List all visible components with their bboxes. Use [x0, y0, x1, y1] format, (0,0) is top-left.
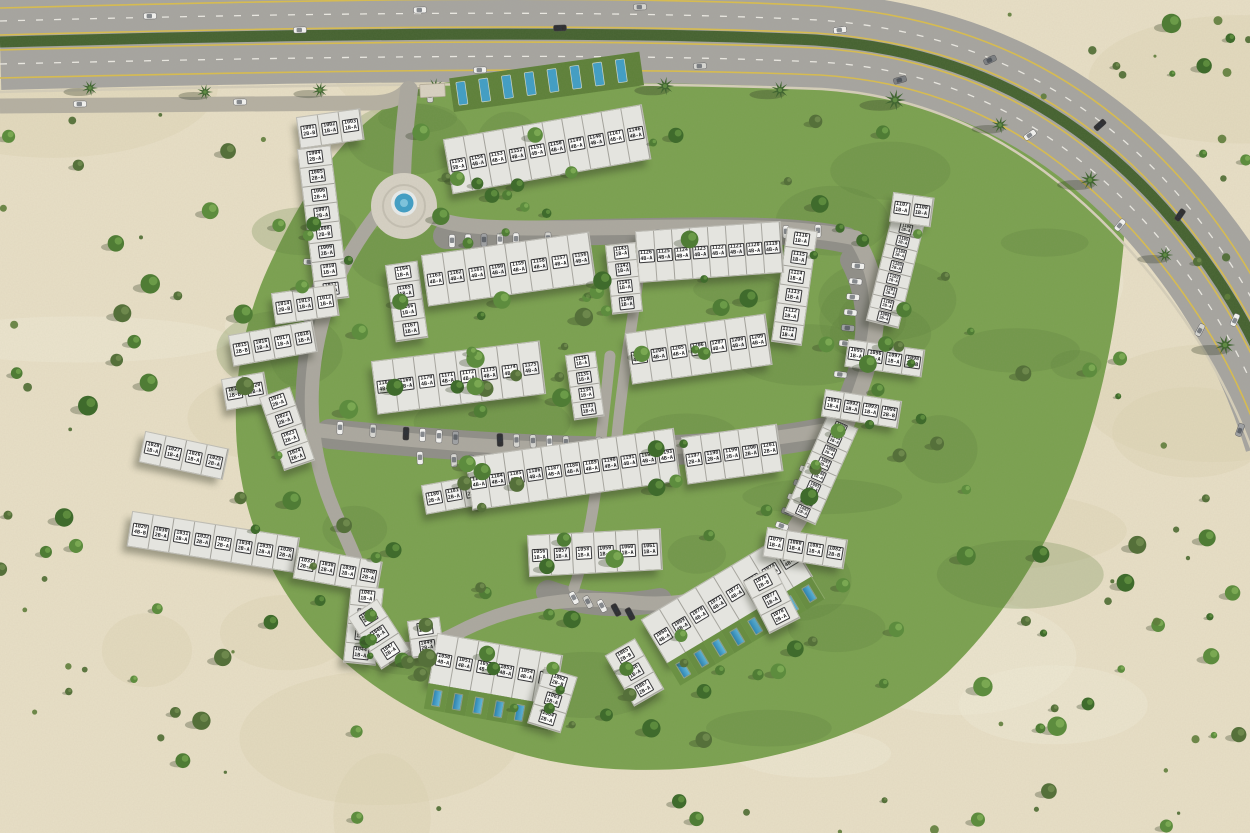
unit-type: 2B-A: [175, 536, 188, 543]
unit-type: 4B-B: [133, 529, 146, 536]
unit-type: 2B-A: [797, 509, 807, 517]
unit-type: 2B-A: [309, 156, 322, 163]
unit-type: 1B-A: [868, 356, 881, 363]
pool: [451, 693, 463, 711]
unit-type: 1B-A: [826, 403, 839, 410]
unit: 10591B-A: [594, 531, 618, 572]
unit-type: 4B-A: [575, 258, 588, 265]
unit-plaque: 10534B-A: [497, 663, 515, 679]
unit-type: 2B-A: [314, 194, 327, 201]
unit-plaque: 10012B-B: [300, 124, 318, 139]
unit-plaque: 10801B-A: [786, 539, 804, 555]
unit-plaque: 10372B-A: [297, 557, 315, 573]
unit-type: 2B-A: [897, 240, 907, 247]
unit: 10982B-B: [902, 348, 924, 376]
unit-plaque: 10242B-A: [286, 447, 305, 465]
building-row-d1: 10281B-A10271B-A10261B-A10252B-A: [140, 432, 228, 479]
unit-plaque: 11604B-A: [489, 263, 507, 278]
unit-type: 4B-A: [633, 357, 646, 364]
unit-type: 4B-A: [640, 256, 652, 262]
unit-plaque: 10441B-A: [352, 646, 369, 661]
unit-type: 4B-A: [437, 659, 450, 667]
unit-plaque: 11574B-A: [551, 254, 569, 269]
unit-type: 1B-A: [619, 286, 631, 293]
unit: 10581B-A: [572, 533, 596, 574]
unit-type: 1B-A: [794, 238, 807, 245]
unit-plaque: 10252B-A: [205, 454, 223, 470]
unit: 10611B-A: [638, 529, 662, 570]
building-row-R4main: 11834B-A11844B-A11854B-A11864B-A11874B-A…: [466, 429, 680, 510]
unit-type: 4B-A: [732, 343, 745, 350]
unit-type: 1B-A: [895, 207, 908, 214]
unit-type: 4B-A: [519, 674, 532, 682]
unit-type: 4B-A: [585, 466, 598, 473]
unit-plaque: 11401B-A: [618, 296, 635, 311]
unit-type: 4B-A: [548, 471, 561, 478]
unit-type: 4B-A: [421, 381, 434, 388]
unit-plaque: 10714B-A: [707, 594, 728, 614]
unit-plaque: 11012B-A: [883, 285, 899, 299]
unit-plaque: 11002B-A: [879, 298, 895, 312]
unit-plaque: 11894B-A: [583, 459, 601, 474]
unit-plaque: 11634B-A: [427, 272, 445, 287]
unit-type: 2B-A: [421, 645, 434, 652]
unit-plaque: 10724B-A: [725, 583, 746, 603]
unit-type: 1B-A: [808, 549, 821, 556]
unit-plaque: 11484B-A: [587, 133, 605, 149]
unit-plaque: 11724B-A: [460, 369, 478, 384]
unit-type: 2B-A: [299, 563, 312, 571]
unit: 10571B-A: [550, 534, 574, 575]
unit-plaque: 10082B-B: [315, 225, 333, 240]
unit-plaque: 11121B-A: [782, 307, 800, 322]
unit-plaque: 11555B-A: [449, 157, 467, 173]
unit-type: 4B-A: [457, 663, 470, 671]
unit-type: 1B-A: [792, 257, 805, 264]
unit-type: 1B-A: [360, 596, 373, 603]
unit-type: 4B-A: [567, 468, 580, 475]
building-row-col1164: 11641B-A11651B-A11661B-A11671B-A: [386, 262, 427, 342]
unit-plaque: 11032B-A: [889, 260, 905, 274]
unit-type: 4B-A: [531, 150, 544, 158]
unit-type: 1B-A: [419, 627, 432, 634]
pool: [801, 584, 817, 603]
unit-type: 4B-A: [752, 340, 765, 347]
unit-plaque: 11524B-A: [508, 147, 526, 163]
unit-type: 2B-A: [707, 456, 720, 463]
unit-plaque: 11844B-A: [488, 472, 506, 487]
building-row-row-top: 11555B-A11544B-A11534B-A11524B-A11514B-A…: [444, 105, 650, 193]
unit-plaque: 11351B-A: [575, 370, 592, 384]
unit-plaque: 11992B-A: [723, 447, 741, 462]
unit-plaque: 11431B-A: [613, 245, 630, 260]
unit-type: 1B-A: [320, 301, 333, 308]
unit-type: 4B-A: [462, 376, 475, 383]
unit-plaque: 10694B-A: [671, 616, 692, 636]
unit-plaque: 11254B-A: [656, 248, 673, 262]
unit-plaque: 10062B-A: [311, 187, 329, 202]
unit: 11401B-A: [611, 294, 642, 314]
unit-plaque: 10121B-A: [317, 294, 335, 309]
unit: 10031B-A: [339, 109, 364, 142]
unit-plaque: 11141B-A: [787, 269, 805, 284]
unit-type: 2B-A: [888, 278, 898, 285]
unit-type: 2B-A: [290, 453, 303, 462]
unit-plaque: 11194B-A: [763, 240, 780, 254]
pool: [430, 689, 442, 707]
unit-type: 1B-A: [187, 456, 200, 464]
unit-plaque: 11624B-A: [447, 269, 465, 284]
unit-type: 4B-A: [658, 255, 670, 261]
unit-plaque: 11834B-A: [470, 475, 488, 490]
unit-type: 2B-A: [196, 539, 209, 546]
unit-plaque: 10382B-A: [318, 560, 336, 576]
building-row-colRLow: 10902B-A10892B-A10882B-A10872B-A10862B-A…: [786, 416, 858, 524]
unit-plaque: 10392B-A: [339, 564, 357, 580]
unit-plaque: 11661B-A: [399, 303, 417, 318]
unit-type: 4B-A: [694, 252, 706, 258]
unit-plaque: 10571B-A: [553, 547, 570, 561]
unit-type: 2B-A: [207, 461, 220, 469]
unit-plaque: 11361B-A: [573, 354, 590, 368]
unit-type: 2B-A: [894, 253, 904, 260]
unit-type: 4B-A: [471, 273, 484, 280]
pool: [729, 627, 745, 646]
buildings-layer: 11555B-A11544B-A11534B-A11524B-A11514B-A…: [0, 0, 1250, 833]
unit-plaque: 10142B-B: [275, 300, 293, 315]
building-row-R2main: 11634B-A11624B-A11614B-A11604B-A11594B-A…: [422, 233, 595, 306]
unit-plaque: 10031B-A: [342, 118, 360, 133]
unit-plaque: 12044B-A: [650, 347, 668, 362]
unit-plaque: 11934B-A: [658, 448, 676, 463]
unit-plaque: 10684B-A: [653, 626, 674, 646]
unit-type: 4B-A: [673, 351, 686, 358]
building-row-colMidR: 11361B-A11351B-A11341B-A11331B-A: [566, 352, 604, 419]
unit-plaque: 11341B-A: [577, 386, 594, 400]
building-row-rowRMid: 10951B-A10961B-A10971B-A10982B-B: [845, 340, 924, 376]
unit-plaque: 10591B-A: [597, 545, 614, 559]
unit-plaque: 11884B-A: [564, 462, 582, 477]
unit-plaque: 11684B-A: [376, 379, 394, 394]
unit-plaque: 11514B-A: [528, 143, 546, 159]
building-row-h5: 10152B-B10161B-A10171B-A10181B-A: [229, 321, 317, 365]
unit-type: 2B-A: [272, 400, 285, 409]
unit-plaque: 10342B-A: [235, 539, 253, 555]
building-row-h3: 10012B-B10021B-A10031B-A: [297, 109, 364, 147]
unit-plaque: 11534B-A: [488, 150, 506, 166]
unit-plaque: 11131B-A: [784, 288, 802, 303]
unit-plaque: 10504B-A: [434, 652, 452, 668]
unit-type: 2B-A: [763, 448, 776, 455]
unit-type: 2B-B: [906, 361, 919, 368]
unit-type: 2B-A: [882, 303, 892, 310]
unit-plaque: 11564B-A: [572, 251, 590, 266]
unit-type: 2B-A: [745, 451, 758, 458]
unit-type: 1B-A: [580, 392, 592, 399]
unit-type: 4B-A: [712, 251, 724, 257]
unit-plaque: 10791B-A: [766, 536, 784, 552]
unit-plaque: 10601B-A: [619, 544, 636, 558]
unit-plaque: 11744B-A: [501, 364, 519, 379]
building-row-pairRTop: 11071B-A11081B-A: [890, 193, 934, 226]
unit-type: 2B-B: [303, 131, 316, 138]
unit-plaque: 11052B-A: [895, 234, 911, 248]
unit-type: 1B-A: [887, 359, 900, 366]
pool: [492, 700, 504, 718]
unit-type: 2B-A: [878, 316, 888, 323]
unit-type: 2B-A: [341, 571, 354, 579]
unit-plaque: 10982B-B: [904, 354, 922, 369]
unit-type: 1B-A: [621, 551, 633, 557]
unit-plaque: 10312B-A: [173, 529, 191, 545]
unit-type: 2B-A: [320, 567, 333, 575]
unit-type: 4B-A: [676, 253, 688, 259]
unit-type: 4B-A: [766, 247, 778, 253]
unit-plaque: 10704B-A: [689, 605, 710, 625]
unit-plaque: 10524B-A: [476, 660, 494, 676]
unit: 10601B-A: [616, 530, 640, 571]
unit-type: 4B-A: [629, 133, 642, 141]
unit-plaque: 10052B-A: [309, 168, 327, 183]
unit-plaque: 11904B-A: [601, 456, 619, 471]
unit-type: 1B-A: [402, 310, 415, 317]
unit-plaque: 10281B-A: [143, 441, 161, 457]
building-row-rowR2Upper: 12034B-A12044B-A12054B-A12064B-A12074B-A…: [626, 315, 772, 384]
unit-plaque: 11081B-A: [912, 203, 930, 218]
pool: [675, 660, 691, 679]
unit-plaque: 12054B-A: [670, 344, 688, 359]
unit-plaque: 11062B-A: [898, 222, 914, 236]
unit-plaque: 10622B-B: [549, 673, 568, 690]
unit-plaque: 11854B-A: [507, 470, 525, 485]
unit-type: 1B-A: [788, 546, 801, 553]
unit-type: 2B-A: [540, 716, 553, 725]
unit-type: 1B-A: [555, 554, 567, 560]
unit-type: 2B-B: [828, 552, 841, 559]
building-row-rowRUpper: 11264B-A11254B-A11244B-A11234B-A11224B-A…: [636, 222, 783, 282]
unit: 10822B-B: [823, 537, 847, 568]
unit-type: 1B-A: [277, 341, 290, 349]
unit-type: 4B-A: [590, 140, 603, 148]
unit-type: 1B-A: [578, 376, 590, 383]
unit-type: 4B-A: [510, 476, 523, 483]
unit-type: 4B-A: [429, 279, 442, 286]
unit-type: 4B-A: [499, 670, 512, 678]
unit-plaque: 11022B-A: [886, 272, 902, 286]
unit-type: 4B-A: [730, 250, 742, 256]
unit-plaque: 11914B-A: [620, 454, 638, 469]
unit-plaque: 10261B-A: [185, 449, 203, 465]
unit-type: 1B-A: [146, 447, 159, 455]
unit-plaque: 10581B-A: [575, 546, 592, 560]
unit-plaque: 11111B-A: [779, 325, 797, 340]
unit: 11671B-A: [394, 318, 427, 341]
unit-type: 1B-A: [545, 698, 558, 707]
unit-type: 4B-A: [712, 345, 725, 352]
unit-plaque: 10782B-A: [770, 607, 790, 626]
unit-plaque: 10302B-A: [152, 526, 170, 542]
unit-plaque: 10611B-A: [641, 543, 658, 557]
unit-plaque: 10961B-A: [866, 349, 884, 364]
unit-type: 4B-A: [504, 370, 517, 377]
unit-type: 2B-B: [278, 307, 291, 314]
unit-plaque: 12084B-A: [729, 336, 747, 351]
unit-plaque: 10931B-A: [861, 402, 879, 418]
unit-plaque: 10222B-A: [274, 411, 293, 429]
unit-plaque: 11874B-A: [545, 464, 563, 479]
building-row-h4: 10142B-B10131B-A10121B-A: [272, 285, 339, 323]
unit-plaque: 11754B-A: [522, 361, 540, 376]
unit-plaque: 12002B-A: [742, 444, 760, 459]
unit-plaque: 10362B-A: [276, 546, 294, 562]
unit-type: 1B-A: [166, 452, 179, 460]
unit-type: 1B-A: [784, 313, 797, 320]
unit-type: 2B-A: [900, 228, 910, 235]
unit-plaque: 10514B-A: [455, 656, 473, 672]
building-row-trioBrL: 10652B-B10661B-A10672B-A: [606, 640, 663, 706]
unit-type: 1B-A: [599, 552, 611, 558]
unit-plaque: 10332B-A: [214, 536, 232, 552]
unit-type: 2B-A: [448, 494, 461, 502]
unit-plaque: 10492B-A: [418, 638, 436, 653]
unit-type: 2B-A: [316, 213, 329, 220]
unit-plaque: 10072B-A: [313, 206, 331, 221]
building-row-R3main: 11684B-A11694B-A11704B-A11714B-A11724B-A…: [372, 342, 545, 414]
unit-type: 4B-A: [642, 458, 655, 465]
unit-type: 2B-A: [885, 291, 895, 298]
building-row-block-center: 10561B-A10571B-A10581B-A10591B-A10601B-A…: [528, 529, 662, 576]
unit-plaque: 11264B-A: [638, 249, 655, 263]
unit-type: 1B-A: [397, 272, 410, 279]
unit: 10561B-A: [528, 535, 552, 576]
unit-plaque: 11204B-A: [745, 242, 762, 256]
unit-type: 1B-A: [643, 549, 655, 555]
unit-type: 4B-A: [748, 248, 760, 254]
unit-plaque: 10232B-A: [280, 429, 299, 447]
unit-plaque: 11244B-A: [674, 247, 691, 261]
unit-plaque: 11331B-A: [580, 402, 597, 416]
unit-plaque: 11464B-A: [626, 126, 644, 142]
unit-plaque: 11584B-A: [530, 257, 548, 272]
building-row-v2: 10212B-A10222B-A10232B-A10242B-A: [260, 388, 314, 470]
unit-type: 1B-A: [345, 125, 358, 132]
building-row-colR: 11062B-A11052B-A11042B-A11032B-A11022B-A…: [867, 219, 923, 328]
unit-type: 2B-B: [318, 232, 331, 239]
unit-plaque: 10322B-A: [193, 532, 211, 548]
unit-type: 1B-A: [915, 210, 928, 217]
unit-plaque: 10181B-A: [294, 330, 312, 346]
unit-plaque: 12034B-A: [630, 350, 648, 365]
unit-plaque: 10131B-A: [296, 297, 314, 312]
unit-plaque: 11812B-A: [444, 487, 462, 503]
unit-type: 4B-A: [692, 348, 705, 355]
unit-plaque: 10101B-A: [320, 263, 338, 278]
unit-plaque: 11544B-A: [469, 154, 487, 170]
unit-plaque: 11234B-A: [692, 245, 709, 259]
unit-type: 1B-A: [768, 542, 781, 549]
pool: [513, 704, 525, 722]
unit-type: 1B-A: [256, 344, 269, 352]
unit-plaque: 10021B-A: [321, 121, 339, 136]
unit: 11081B-A: [910, 196, 934, 227]
unit-plaque: 11071B-A: [893, 201, 911, 216]
unit-plaque: 11641B-A: [394, 265, 412, 280]
unit-plaque: 11151B-A: [790, 250, 808, 265]
unit-plaque: 10951B-A: [847, 346, 865, 361]
unit-type: 4B-A: [478, 667, 491, 675]
unit-type: 4B-A: [513, 267, 526, 274]
unit-plaque: 11224B-A: [710, 244, 727, 258]
unit-type: 2B-A: [216, 543, 229, 550]
unit-plaque: 11421B-A: [615, 262, 632, 277]
unit-type: 1B-A: [299, 304, 312, 311]
unit-type: 2B-A: [311, 175, 324, 182]
unit-plaque: 12064B-A: [689, 341, 707, 356]
unit-plaque: 11924B-A: [639, 451, 657, 466]
unit-plaque: 11411B-A: [616, 279, 633, 294]
unit-plaque: 10811B-A: [806, 542, 824, 558]
unit: 11111B-A: [772, 322, 803, 345]
unit-type: 1B-A: [617, 269, 629, 276]
unit-type: 4B-A: [604, 463, 617, 470]
unit-type: 1B-A: [786, 295, 799, 302]
unit-type: 4B-A: [379, 386, 392, 393]
unit-type: 2B-A: [726, 453, 739, 460]
building-row-d2: 10294B-B10302B-A10312B-A10322B-A10332B-A…: [128, 512, 299, 572]
unit-plaque: 10212B-A: [268, 393, 287, 411]
unit-plaque: 10822B-B: [825, 545, 843, 561]
masterplan-aerial-view: 11555B-A11544B-A11534B-A11524B-A11514B-A…: [0, 0, 1250, 833]
unit-type: 1B-A: [324, 128, 337, 135]
unit-plaque: 10201B-A: [246, 382, 264, 398]
unit-plaque: 10092B-A: [318, 244, 336, 259]
unit-plaque: 10672B-A: [634, 679, 654, 698]
unit-plaque: 11671B-A: [402, 322, 420, 337]
unit-type: 4B-A: [472, 160, 485, 168]
unit-type: 4B-A: [623, 461, 636, 468]
unit-plaque: 10911B-A: [824, 396, 842, 412]
unit-type: 4B-A: [529, 474, 542, 481]
unit-type: 1B-A: [534, 555, 546, 561]
unit-type: 2B-A: [428, 497, 441, 505]
unit-type: 4B-A: [610, 136, 623, 144]
unit-plaque: 11864B-A: [526, 467, 544, 482]
unit-plaque: 10042B-A: [306, 149, 324, 164]
unit-plaque: 11161B-A: [792, 231, 810, 246]
unit-type: 1B-A: [621, 303, 633, 310]
unit-type: 4B-A: [492, 157, 505, 165]
unit-type: 4B-A: [492, 270, 505, 277]
unit-type: 1B-A: [849, 353, 862, 360]
unit-plaque: 12074B-A: [709, 339, 727, 354]
unit-type: 4B-A: [450, 276, 463, 283]
unit: 11194B-A: [762, 222, 783, 273]
unit-plaque: 11734B-A: [481, 366, 499, 381]
unit-type: 2B-A: [237, 546, 250, 553]
unit-type: 2B-B: [236, 348, 249, 356]
unit-type: 4B-A: [483, 373, 496, 380]
unit-plaque: 12012B-A: [761, 441, 779, 456]
unit-type: 1B-A: [583, 408, 595, 415]
pool: [472, 696, 484, 714]
unit-type: 1B-A: [354, 653, 367, 660]
unit-plaque: 10472B-A: [379, 641, 400, 661]
unit-plaque: 10171B-A: [274, 334, 292, 350]
unit-plaque: 11982B-A: [704, 449, 722, 464]
building-row-h7: 10372B-A10382B-A10392B-A10402B-A: [294, 548, 382, 592]
unit-plaque: 10942B-B: [880, 405, 898, 421]
unit-type: 1B-A: [577, 553, 589, 559]
